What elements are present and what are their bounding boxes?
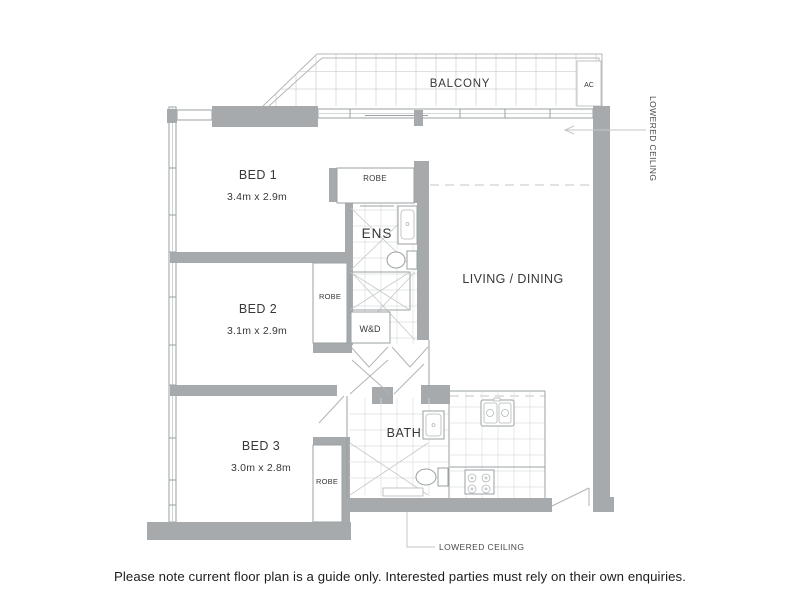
balcony-label: BALCONY bbox=[430, 78, 491, 90]
ac-label: AC bbox=[584, 82, 594, 89]
wall-top-left-pier bbox=[167, 109, 177, 123]
wall-bed1-top bbox=[212, 106, 318, 127]
wall-robe2-bottom bbox=[313, 343, 352, 353]
ens-label: ENS bbox=[362, 226, 393, 241]
entry-door-swing bbox=[552, 488, 589, 506]
lowered-ceiling-right-label: LOWERED CEILING bbox=[648, 96, 658, 181]
robe-bed3-label: ROBE bbox=[316, 477, 338, 486]
bed2-label: BED 2 bbox=[239, 302, 277, 316]
bed3-door-swing bbox=[319, 396, 344, 423]
bed1-dimensions: 3.4m x 2.9m bbox=[227, 191, 287, 203]
ens-toilet-cistern bbox=[407, 251, 417, 269]
kitchen-tap bbox=[494, 398, 500, 401]
wall-bed1-bed2-divider bbox=[170, 252, 347, 263]
bath-toilet-cistern bbox=[438, 468, 448, 486]
lowered-ceiling-bottom-leader bbox=[407, 512, 435, 547]
floor-plan-page: AC BALCONY bbox=[0, 0, 800, 600]
floor-plan-drawing: AC BALCONY bbox=[0, 0, 800, 600]
ens-toilet bbox=[387, 252, 405, 268]
bifold-door-hall bbox=[392, 347, 428, 367]
kitchen bbox=[450, 391, 545, 498]
robe-bed2-label: ROBE bbox=[319, 292, 341, 301]
wall-bottom-mid bbox=[347, 498, 552, 512]
wall-kitchen-corner bbox=[421, 385, 450, 404]
bed3-label: BED 3 bbox=[242, 439, 280, 453]
bath-toilet bbox=[416, 469, 436, 485]
bath-label: BATH bbox=[387, 426, 422, 440]
wall-ens-east bbox=[417, 161, 429, 340]
robe-bed2-box bbox=[313, 263, 347, 343]
wall-right-foot bbox=[593, 497, 614, 512]
balcony-area: AC BALCONY bbox=[263, 54, 602, 106]
wall-bottom-left bbox=[147, 522, 351, 540]
lowered-ceiling-bottom-label: LOWERED CEILING bbox=[439, 542, 524, 552]
bed2-dimensions: 3.1m x 2.9m bbox=[227, 325, 287, 337]
bathroom bbox=[347, 396, 449, 498]
living-dining-label: LIVING / DINING bbox=[462, 272, 563, 286]
wall-robe3-right bbox=[342, 437, 350, 522]
washer-dryer-label: W&D bbox=[360, 324, 381, 334]
ensuite bbox=[350, 186, 417, 344]
room-labels: BED 1 3.4m x 2.9m ROBE ENS LIVING / DINI… bbox=[227, 168, 564, 486]
bed3-dimensions: 3.0m x 2.8m bbox=[231, 462, 291, 474]
wall-top-stub bbox=[414, 110, 423, 126]
robe-bed1-label: ROBE bbox=[363, 174, 387, 183]
bath-mat bbox=[383, 488, 423, 496]
wall-bath-north-left bbox=[372, 387, 393, 404]
top-left-window bbox=[177, 110, 212, 120]
bed1-label: BED 1 bbox=[239, 168, 277, 182]
wall-robe1-left bbox=[329, 168, 337, 202]
wall-bed2-bed3-divider bbox=[170, 385, 337, 396]
wall-right bbox=[593, 106, 610, 512]
disclaimer-text: Please note current floor plan is a guid… bbox=[114, 569, 686, 584]
